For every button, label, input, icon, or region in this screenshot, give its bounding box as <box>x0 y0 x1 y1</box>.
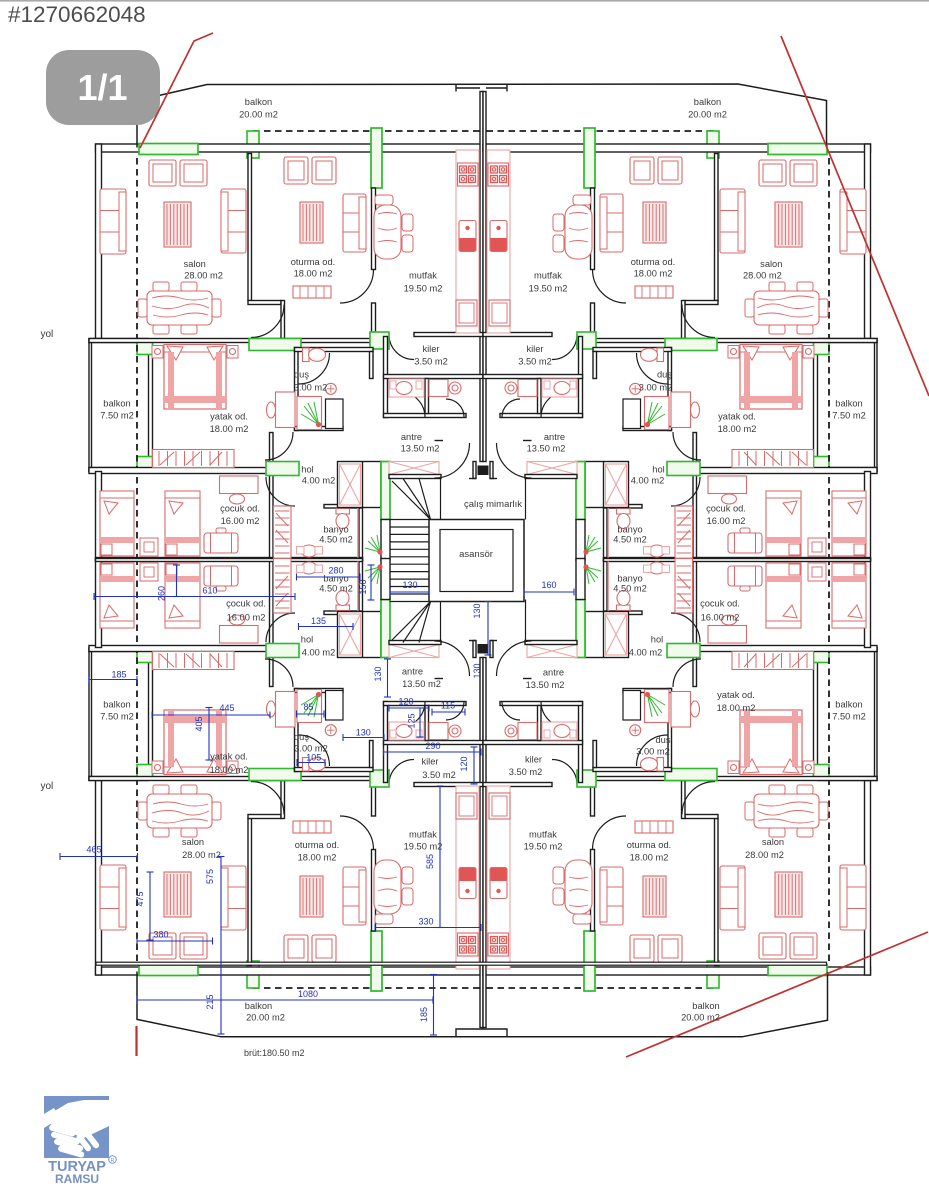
svg-text:3.00 m2: 3.00 m2 <box>639 383 673 393</box>
svg-text:çalış mimarlık: çalış mimarlık <box>464 499 522 510</box>
svg-text:oturma od.: oturma od. <box>627 840 671 850</box>
svg-text:mutfak: mutfak <box>534 271 562 281</box>
svg-text:20.00 m2: 20.00 m2 <box>239 110 278 120</box>
svg-text:260: 260 <box>157 586 167 601</box>
svg-text:yatak od.: yatak od. <box>210 752 248 762</box>
svg-text:18.00 m2: 18.00 m2 <box>717 703 756 713</box>
svg-text:475: 475 <box>135 891 145 906</box>
svg-text:13.50 m2: 13.50 m2 <box>527 444 566 454</box>
svg-text:mutfak: mutfak <box>409 271 437 281</box>
svg-text:4.00 m2: 4.00 m2 <box>302 476 336 486</box>
svg-text:duş: duş <box>294 732 309 742</box>
svg-text:4.50 m2: 4.50 m2 <box>319 584 353 594</box>
svg-text:banyo: banyo <box>617 574 642 584</box>
svg-text:oturma od.: oturma od. <box>295 840 339 850</box>
svg-text:7.50 m2: 7.50 m2 <box>832 411 866 421</box>
svg-text:290: 290 <box>425 741 440 751</box>
svg-text:28.00 m2: 28.00 m2 <box>743 271 782 281</box>
svg-text:4.00 m2: 4.00 m2 <box>302 648 336 658</box>
svg-text:balkon: balkon <box>692 1001 719 1011</box>
svg-text:kiler: kiler <box>526 344 543 354</box>
svg-text:18.00 m2: 18.00 m2 <box>634 269 673 279</box>
svg-text:135: 135 <box>311 616 326 626</box>
svg-text:185: 185 <box>419 1007 429 1022</box>
svg-text:125: 125 <box>407 713 417 728</box>
svg-text:610: 610 <box>202 586 217 596</box>
svg-text:7.50 m2: 7.50 m2 <box>100 712 134 722</box>
svg-text:18.00 m2: 18.00 m2 <box>210 765 249 775</box>
svg-text:18.00 m2: 18.00 m2 <box>294 269 333 279</box>
svg-text:balkon: balkon <box>835 399 862 409</box>
svg-text:280: 280 <box>328 566 343 576</box>
svg-text:405: 405 <box>194 716 204 731</box>
svg-text:oturma od.: oturma od. <box>291 257 335 267</box>
svg-text:duş: duş <box>656 735 671 745</box>
svg-text:yatak od.: yatak od. <box>718 412 756 422</box>
svg-text:balkon: balkon <box>245 97 272 107</box>
svg-text:130: 130 <box>373 666 383 681</box>
svg-text:duş: duş <box>657 370 672 380</box>
svg-text:20.00 m2: 20.00 m2 <box>681 1013 720 1023</box>
svg-text:4.50 m2: 4.50 m2 <box>613 584 647 594</box>
svg-text:445: 445 <box>219 703 234 713</box>
svg-text:3.50 m2: 3.50 m2 <box>509 767 543 777</box>
svg-text:çocuk od.: çocuk od. <box>226 599 266 609</box>
svg-text:20.00 m2: 20.00 m2 <box>688 110 727 120</box>
svg-text:salon: salon <box>760 259 782 269</box>
svg-text:balkon: balkon <box>835 700 862 710</box>
svg-text:19.50 m2: 19.50 m2 <box>529 284 568 294</box>
svg-text:4.00 m2: 4.00 m2 <box>629 648 663 658</box>
svg-text:antre: antre <box>544 432 565 442</box>
svg-text:20.00 m2: 20.00 m2 <box>246 1013 285 1023</box>
svg-text:hol: hol <box>651 635 663 645</box>
svg-text:salon: salon <box>762 837 784 847</box>
svg-text:RAMSU: RAMSU <box>55 1172 99 1186</box>
svg-text:çocuk od.: çocuk od. <box>220 504 260 514</box>
svg-text:balkon: balkon <box>694 97 721 107</box>
svg-text:16.00 m2: 16.00 m2 <box>701 613 740 623</box>
svg-text:16.00 m2: 16.00 m2 <box>221 516 260 526</box>
svg-text:1080: 1080 <box>298 989 318 999</box>
svg-text:28.00 m2: 28.00 m2 <box>745 850 784 860</box>
svg-text:3.50 m2: 3.50 m2 <box>414 357 448 367</box>
svg-text:1/1: 1/1 <box>77 67 127 108</box>
svg-text:balkon: balkon <box>103 399 130 409</box>
svg-text:120: 120 <box>398 697 413 707</box>
svg-text:13.50 m2: 13.50 m2 <box>401 444 440 454</box>
svg-text:antre: antre <box>543 668 564 678</box>
svg-text:3.00 m2: 3.00 m2 <box>636 747 670 757</box>
svg-text:130: 130 <box>402 580 417 590</box>
svg-text:7.50 m2: 7.50 m2 <box>832 712 866 722</box>
svg-text:160: 160 <box>541 580 556 590</box>
svg-text:4.50 m2: 4.50 m2 <box>613 535 647 545</box>
svg-text:#1270662048: #1270662048 <box>8 2 146 27</box>
svg-text:13.50 m2: 13.50 m2 <box>526 680 565 690</box>
svg-text:465: 465 <box>86 845 101 855</box>
svg-text:salon: salon <box>182 837 204 847</box>
svg-text:185: 185 <box>111 670 126 680</box>
svg-text:kiler: kiler <box>422 344 439 354</box>
svg-text:salon: salon <box>184 259 206 269</box>
svg-text:585: 585 <box>425 854 435 869</box>
svg-text:215: 215 <box>205 994 215 1009</box>
svg-text:28.00 m2: 28.00 m2 <box>184 271 223 281</box>
svg-text:mutfak: mutfak <box>529 830 557 840</box>
svg-text:120: 120 <box>459 756 469 771</box>
svg-text:16.00 m2: 16.00 m2 <box>707 516 746 526</box>
svg-text:banyo: banyo <box>617 525 642 535</box>
svg-text:balkon: balkon <box>245 1001 272 1011</box>
svg-text:19.50 m2: 19.50 m2 <box>404 842 443 852</box>
svg-text:oturma od.: oturma od. <box>631 257 675 267</box>
svg-text:150: 150 <box>358 579 368 594</box>
svg-text:130: 130 <box>356 728 371 738</box>
svg-text:banyo: banyo <box>323 525 348 535</box>
svg-text:19.50 m2: 19.50 m2 <box>524 842 563 852</box>
svg-text:R: R <box>111 1158 115 1164</box>
svg-text:antre: antre <box>402 667 423 677</box>
svg-text:balkon: balkon <box>103 700 130 710</box>
svg-text:18.00 m2: 18.00 m2 <box>630 853 669 863</box>
svg-text:kiler: kiler <box>421 757 438 767</box>
svg-text:hol: hol <box>301 635 313 645</box>
svg-text:3.00 m2: 3.00 m2 <box>294 383 328 393</box>
svg-text:hol: hol <box>301 465 313 475</box>
svg-text:çocuk od.: çocuk od. <box>700 599 740 609</box>
svg-text:yatak od.: yatak od. <box>717 690 755 700</box>
svg-text:19.50 m2: 19.50 m2 <box>404 284 443 294</box>
svg-text:13.50 m2: 13.50 m2 <box>402 679 441 689</box>
svg-text:mutfak: mutfak <box>409 830 437 840</box>
svg-text:hol: hol <box>652 465 664 475</box>
svg-text:4.00 m2: 4.00 m2 <box>631 476 665 486</box>
svg-text:yol: yol <box>41 329 54 340</box>
svg-text:çocuk od.: çocuk od. <box>706 504 746 514</box>
svg-text:18.00 m2: 18.00 m2 <box>298 853 337 863</box>
svg-text:3.50 m2: 3.50 m2 <box>422 770 456 780</box>
svg-text:yatak od.: yatak od. <box>210 412 248 422</box>
svg-text:130: 130 <box>472 603 482 618</box>
svg-text:18.00 m2: 18.00 m2 <box>718 424 757 434</box>
svg-text:asansör: asansör <box>459 549 493 560</box>
svg-text:duş: duş <box>294 370 309 380</box>
svg-text:yol: yol <box>41 781 54 792</box>
svg-text:kiler: kiler <box>525 755 542 765</box>
svg-text:3.50 m2: 3.50 m2 <box>518 357 552 367</box>
svg-text:4.50 m2: 4.50 m2 <box>319 535 353 545</box>
svg-text:105: 105 <box>306 753 321 763</box>
svg-text:85: 85 <box>303 702 313 712</box>
svg-text:115: 115 <box>441 701 455 711</box>
svg-text:7.50 m2: 7.50 m2 <box>100 411 134 421</box>
svg-text:18.00 m2: 18.00 m2 <box>210 424 249 434</box>
svg-text:28.00 m2: 28.00 m2 <box>182 850 221 860</box>
svg-text:brüt:180.50 m2: brüt:180.50 m2 <box>244 1048 305 1058</box>
svg-text:16.00 m2: 16.00 m2 <box>227 613 266 623</box>
svg-text:380: 380 <box>153 930 168 940</box>
svg-text:330: 330 <box>418 917 433 927</box>
svg-text:130: 130 <box>472 663 482 678</box>
svg-text:575: 575 <box>205 869 215 884</box>
svg-text:antre: antre <box>401 432 422 442</box>
